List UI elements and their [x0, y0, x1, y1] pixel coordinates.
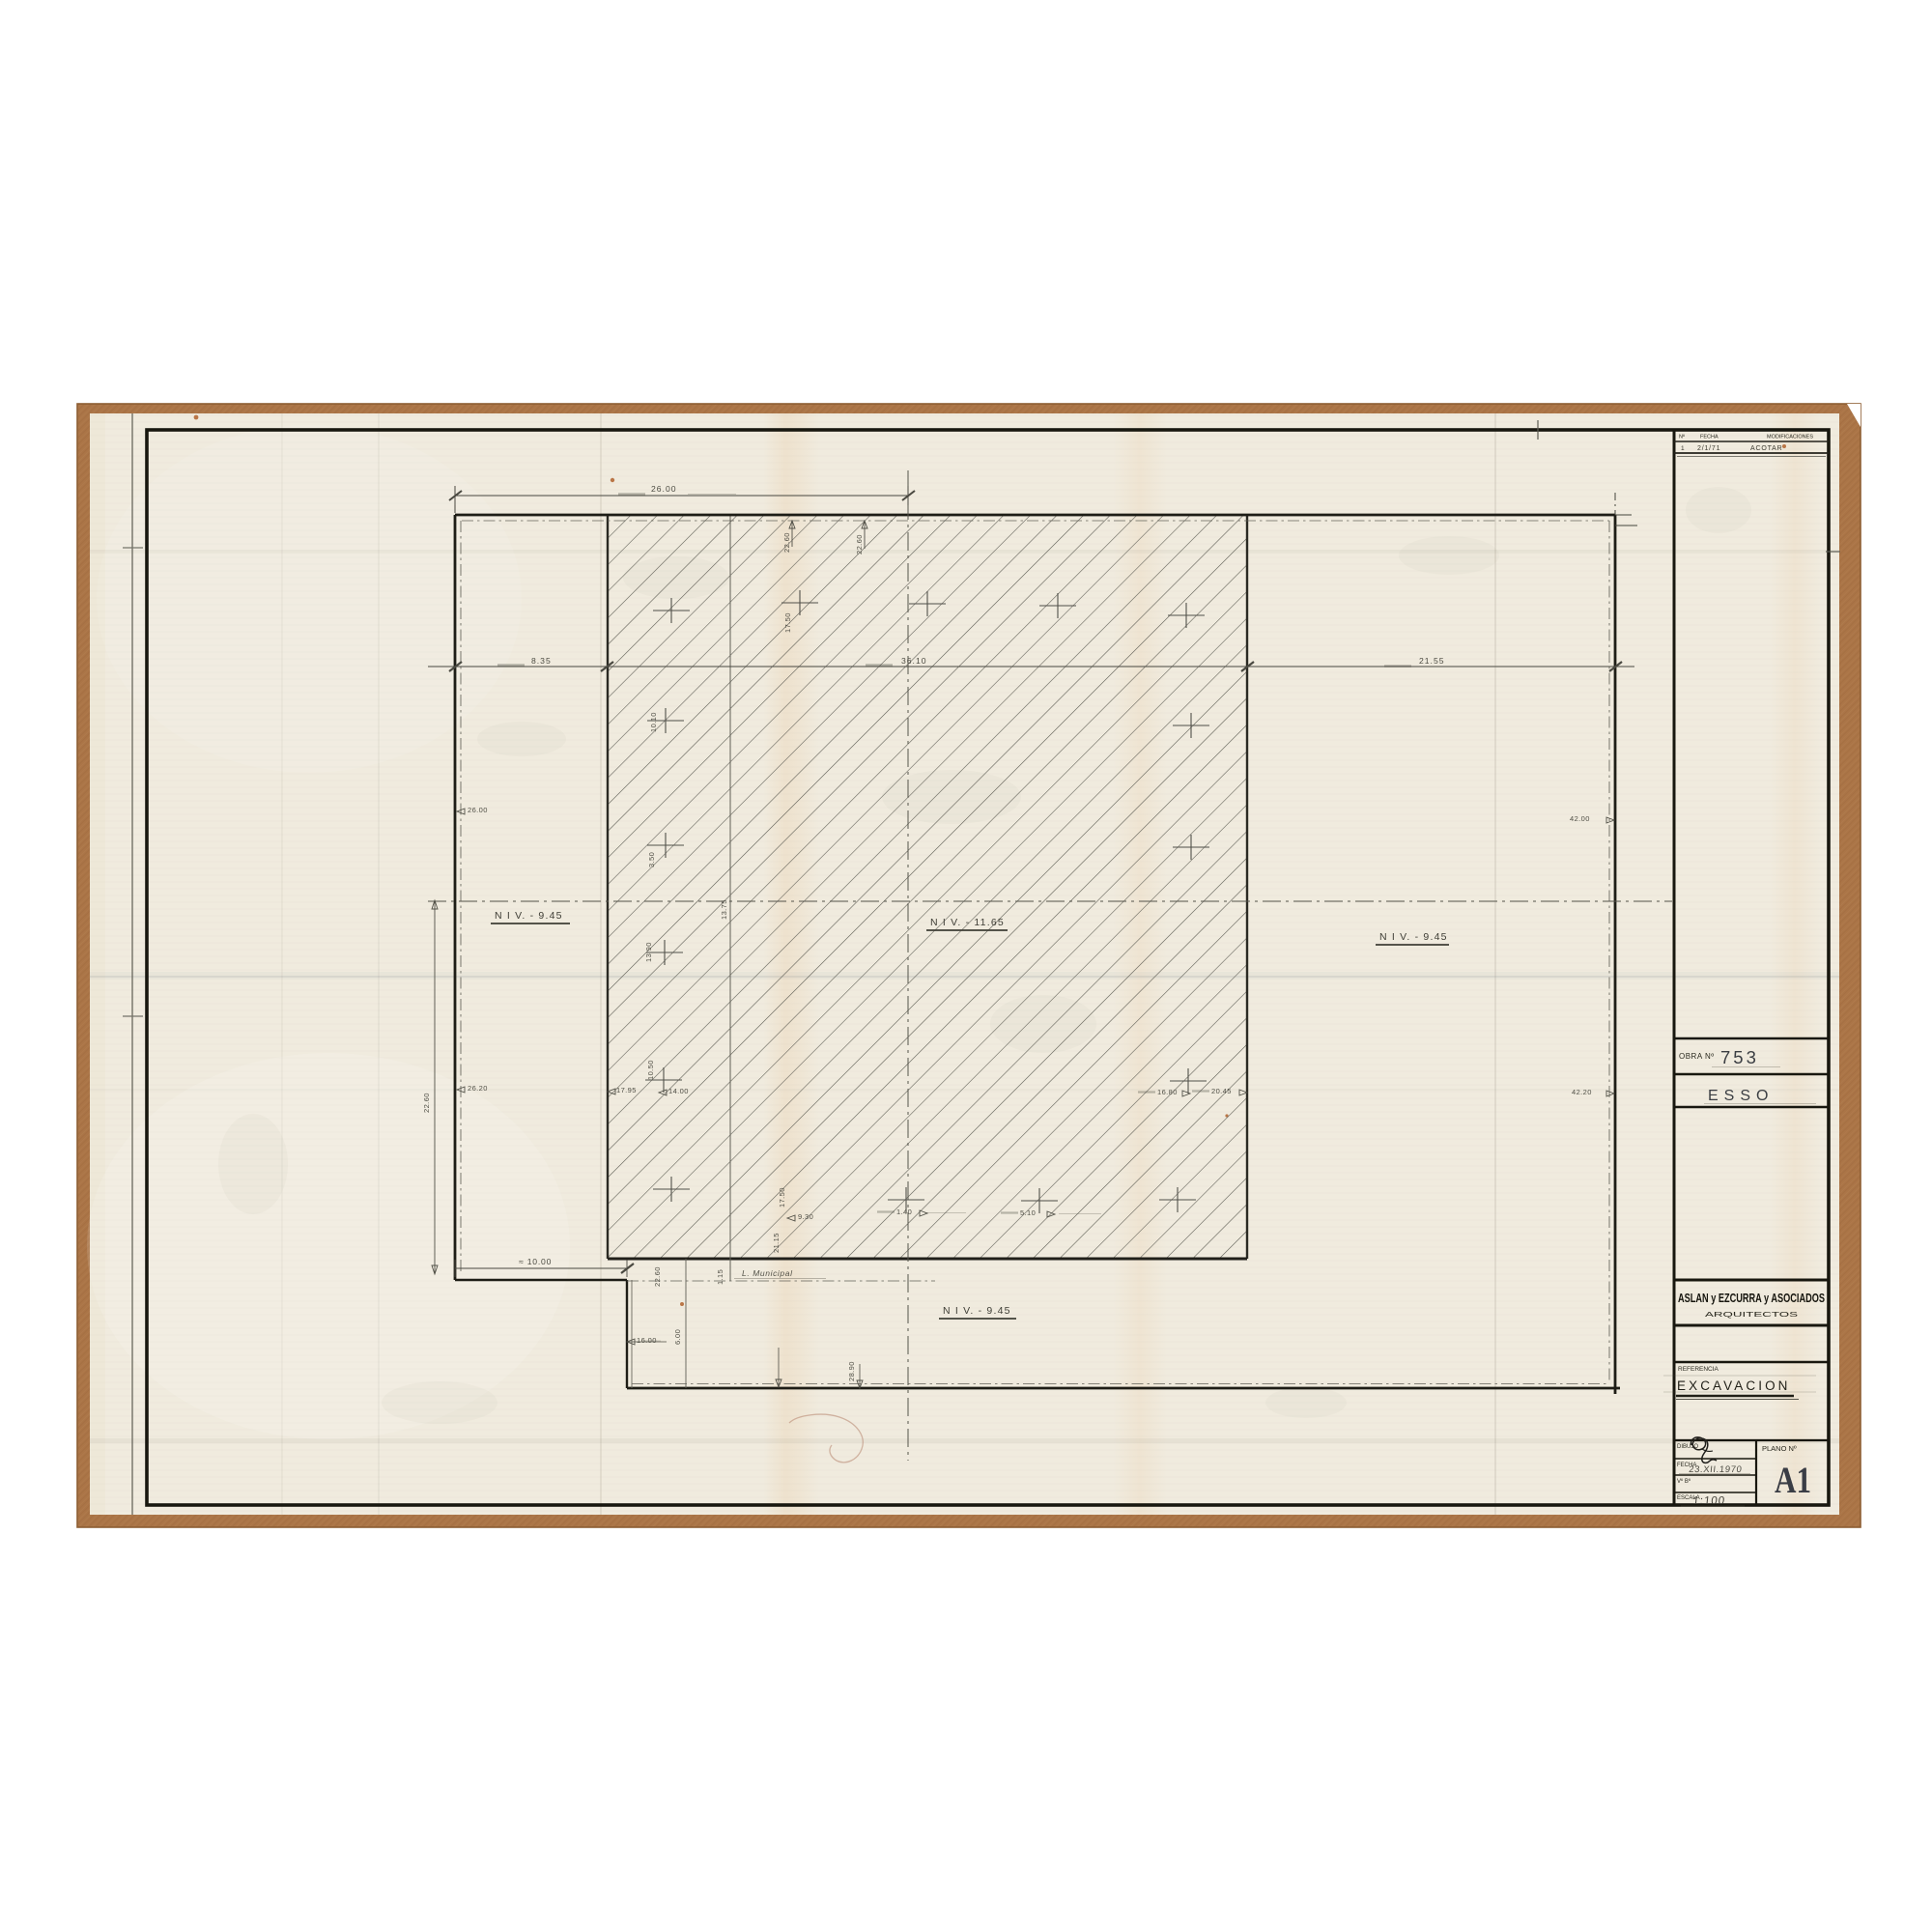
svg-text:21.15: 21.15 [772, 1233, 781, 1253]
svg-text:22.60: 22.60 [422, 1093, 431, 1113]
svg-text:OBRA Nº: OBRA Nº [1679, 1052, 1715, 1061]
svg-text:5.10: 5.10 [1020, 1208, 1036, 1217]
svg-text:N I V. - 9.45: N I V. - 9.45 [1379, 931, 1448, 943]
svg-text:10.10: 10.10 [649, 712, 658, 732]
svg-text:22.60: 22.60 [653, 1266, 662, 1287]
svg-text:17.50: 17.50 [778, 1187, 786, 1207]
svg-text:1.40: 1.40 [896, 1207, 912, 1216]
svg-text:16.00: 16.00 [637, 1336, 657, 1345]
svg-text:1: 1 [1681, 445, 1685, 452]
svg-text:A1: A1 [1775, 1460, 1811, 1501]
svg-text:10.50: 10.50 [646, 1060, 655, 1080]
svg-text:36.10: 36.10 [901, 656, 927, 666]
svg-text:Nº: Nº [1679, 434, 1685, 440]
svg-text:9.30: 9.30 [798, 1212, 813, 1221]
svg-text:MODIFICACIONES: MODIFICACIONES [1767, 435, 1813, 440]
svg-text:42.20: 42.20 [1572, 1088, 1592, 1096]
svg-text:N I V. - 9.45: N I V. - 9.45 [495, 910, 563, 922]
svg-text:FECHA: FECHA [1700, 435, 1719, 440]
svg-text:16.80: 16.80 [1157, 1088, 1178, 1096]
svg-text:ACOTAR: ACOTAR [1750, 445, 1782, 452]
svg-text:13.75: 13.75 [720, 899, 728, 920]
svg-text:1.15: 1.15 [716, 1269, 724, 1285]
svg-text:Vº Bº: Vº Bº [1677, 1478, 1691, 1485]
svg-text:N I V. - 11.65: N I V. - 11.65 [930, 917, 1005, 928]
svg-text:3.50: 3.50 [647, 852, 656, 867]
svg-text:REFERENCIA: REFERENCIA [1678, 1366, 1719, 1373]
svg-text:26.20: 26.20 [468, 1084, 488, 1093]
svg-text:17.95: 17.95 [616, 1086, 637, 1094]
svg-text:21.55: 21.55 [1419, 656, 1445, 666]
svg-text:42.00: 42.00 [1570, 814, 1590, 823]
svg-text:PLANO Nº: PLANO Nº [1762, 1444, 1797, 1453]
svg-text:14.00: 14.00 [668, 1087, 689, 1095]
svg-text:20.45: 20.45 [1211, 1087, 1232, 1095]
svg-text:ASLAN y EZCURRA y ASOCIADOS: ASLAN y EZCURRA y ASOCIADOS [1678, 1292, 1825, 1305]
svg-text:8.35: 8.35 [531, 656, 552, 666]
svg-text:L. Municipal: L. Municipal [742, 1268, 793, 1278]
svg-text:26.00: 26.00 [468, 806, 488, 814]
svg-text:ARQUITECTOS: ARQUITECTOS [1705, 1310, 1798, 1319]
svg-text:22.60: 22.60 [782, 532, 791, 553]
svg-text:28.90: 28.90 [847, 1361, 856, 1381]
svg-text:753: 753 [1720, 1047, 1759, 1067]
svg-text:26.00: 26.00 [651, 484, 677, 494]
svg-text:≈ 10.00: ≈ 10.00 [519, 1257, 552, 1266]
svg-text:22.60: 22.60 [855, 534, 864, 554]
svg-text:1:100: 1:100 [1692, 1495, 1726, 1507]
svg-text:17.50: 17.50 [783, 612, 792, 633]
svg-text:23.XII.1970: 23.XII.1970 [1689, 1464, 1743, 1475]
svg-text:ESSO: ESSO [1708, 1088, 1774, 1104]
svg-text:N I V. - 9.45: N I V. - 9.45 [943, 1305, 1011, 1317]
svg-text:2/1/71: 2/1/71 [1697, 445, 1720, 452]
svg-text:13.90: 13.90 [644, 942, 653, 962]
svg-text:EXCAVACION: EXCAVACION [1677, 1378, 1791, 1393]
svg-text:6.00: 6.00 [673, 1329, 682, 1345]
